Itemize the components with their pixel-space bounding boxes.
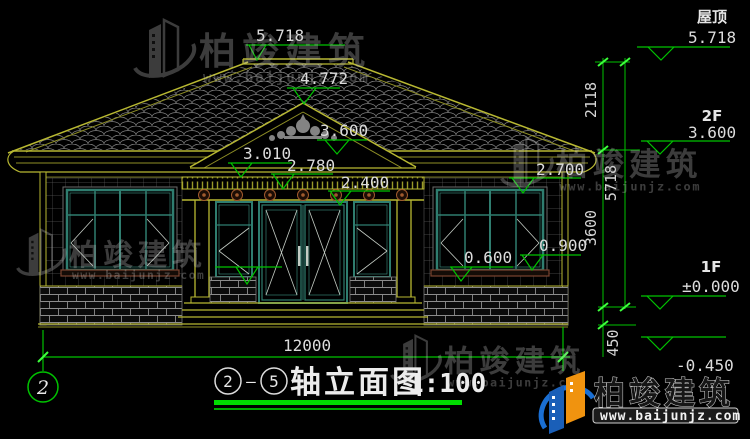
dim-eave-to-floor: 3600 bbox=[582, 210, 600, 246]
title-axis-end: 5 bbox=[269, 372, 279, 391]
title-scale: 1:100 bbox=[408, 369, 486, 399]
level-ground bbox=[641, 337, 726, 350]
porch bbox=[178, 177, 428, 317]
f2-level-value: 3.600 bbox=[688, 123, 736, 142]
total-width-dim: 12000 bbox=[283, 336, 331, 355]
roof-level-label: 屋顶 bbox=[697, 8, 727, 26]
cad-elevation-drawing: 柏竣建筑 www.baijunjz.com bbox=[0, 0, 750, 439]
f1-level-label: 1F bbox=[701, 258, 722, 276]
level-1f bbox=[641, 296, 726, 309]
axis-bubble: 2 bbox=[28, 372, 58, 402]
mark-pediment-base-text: 3.600 bbox=[320, 121, 368, 140]
level-roof bbox=[637, 47, 730, 60]
right-sidelight bbox=[354, 202, 390, 277]
logo-brand-text: 柏竣建筑 bbox=[594, 376, 734, 412]
entrance-door bbox=[259, 202, 347, 303]
title-separator: — bbox=[246, 372, 256, 391]
door-handle-left bbox=[298, 246, 300, 266]
mark-cornice-text: 2.780 bbox=[287, 156, 335, 175]
dim-ridge-to-eave: 2118 bbox=[582, 82, 600, 118]
roof-level-value: 5.718 bbox=[688, 28, 736, 47]
mark-sill-high-text: 0.900 bbox=[539, 236, 587, 255]
dim-plinth: 450 bbox=[604, 329, 622, 356]
right-stub-wall bbox=[350, 277, 396, 303]
logo-building-blue bbox=[549, 385, 564, 434]
axis-bubble-number: 2 bbox=[36, 377, 49, 399]
logo-building-orange bbox=[566, 371, 585, 424]
logo-url-text: www.baijunjz.com bbox=[600, 409, 741, 424]
door-handle-right bbox=[306, 246, 308, 266]
title-axis-start: 2 bbox=[223, 372, 233, 391]
title-underline-thick bbox=[214, 400, 462, 405]
f1-level-value: ±0.000 bbox=[682, 277, 740, 296]
base-line bbox=[38, 324, 568, 327]
brand-logo: 柏竣建筑 www.baijunjz.com bbox=[541, 371, 741, 434]
mark-sill-low-text: 0.600 bbox=[464, 248, 512, 267]
title-underline-thin bbox=[214, 408, 450, 410]
ground-level-value: -0.450 bbox=[676, 356, 734, 375]
mark-porch-beam-text: 2.400 bbox=[341, 173, 389, 192]
mark-eave-top-text: 3.010 bbox=[243, 144, 291, 163]
right-dimension-chains: 2118 5718 3600 450 bbox=[582, 58, 640, 357]
drawing-title: 2 — 5 轴立面图 1:100 bbox=[214, 365, 486, 410]
title-name: 轴立面图 bbox=[290, 365, 426, 401]
elevation-canvas: 柏竣建筑 www.baijunjz.com bbox=[0, 0, 750, 439]
left-sidelight bbox=[216, 202, 252, 277]
